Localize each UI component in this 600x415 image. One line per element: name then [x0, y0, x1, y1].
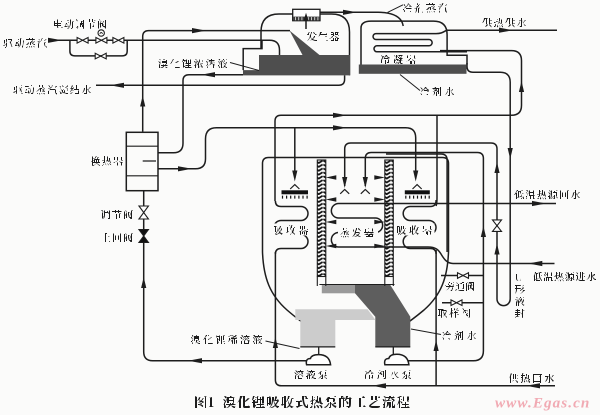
svg-text:www.Egas.cn: www.Egas.cn	[495, 395, 590, 412]
